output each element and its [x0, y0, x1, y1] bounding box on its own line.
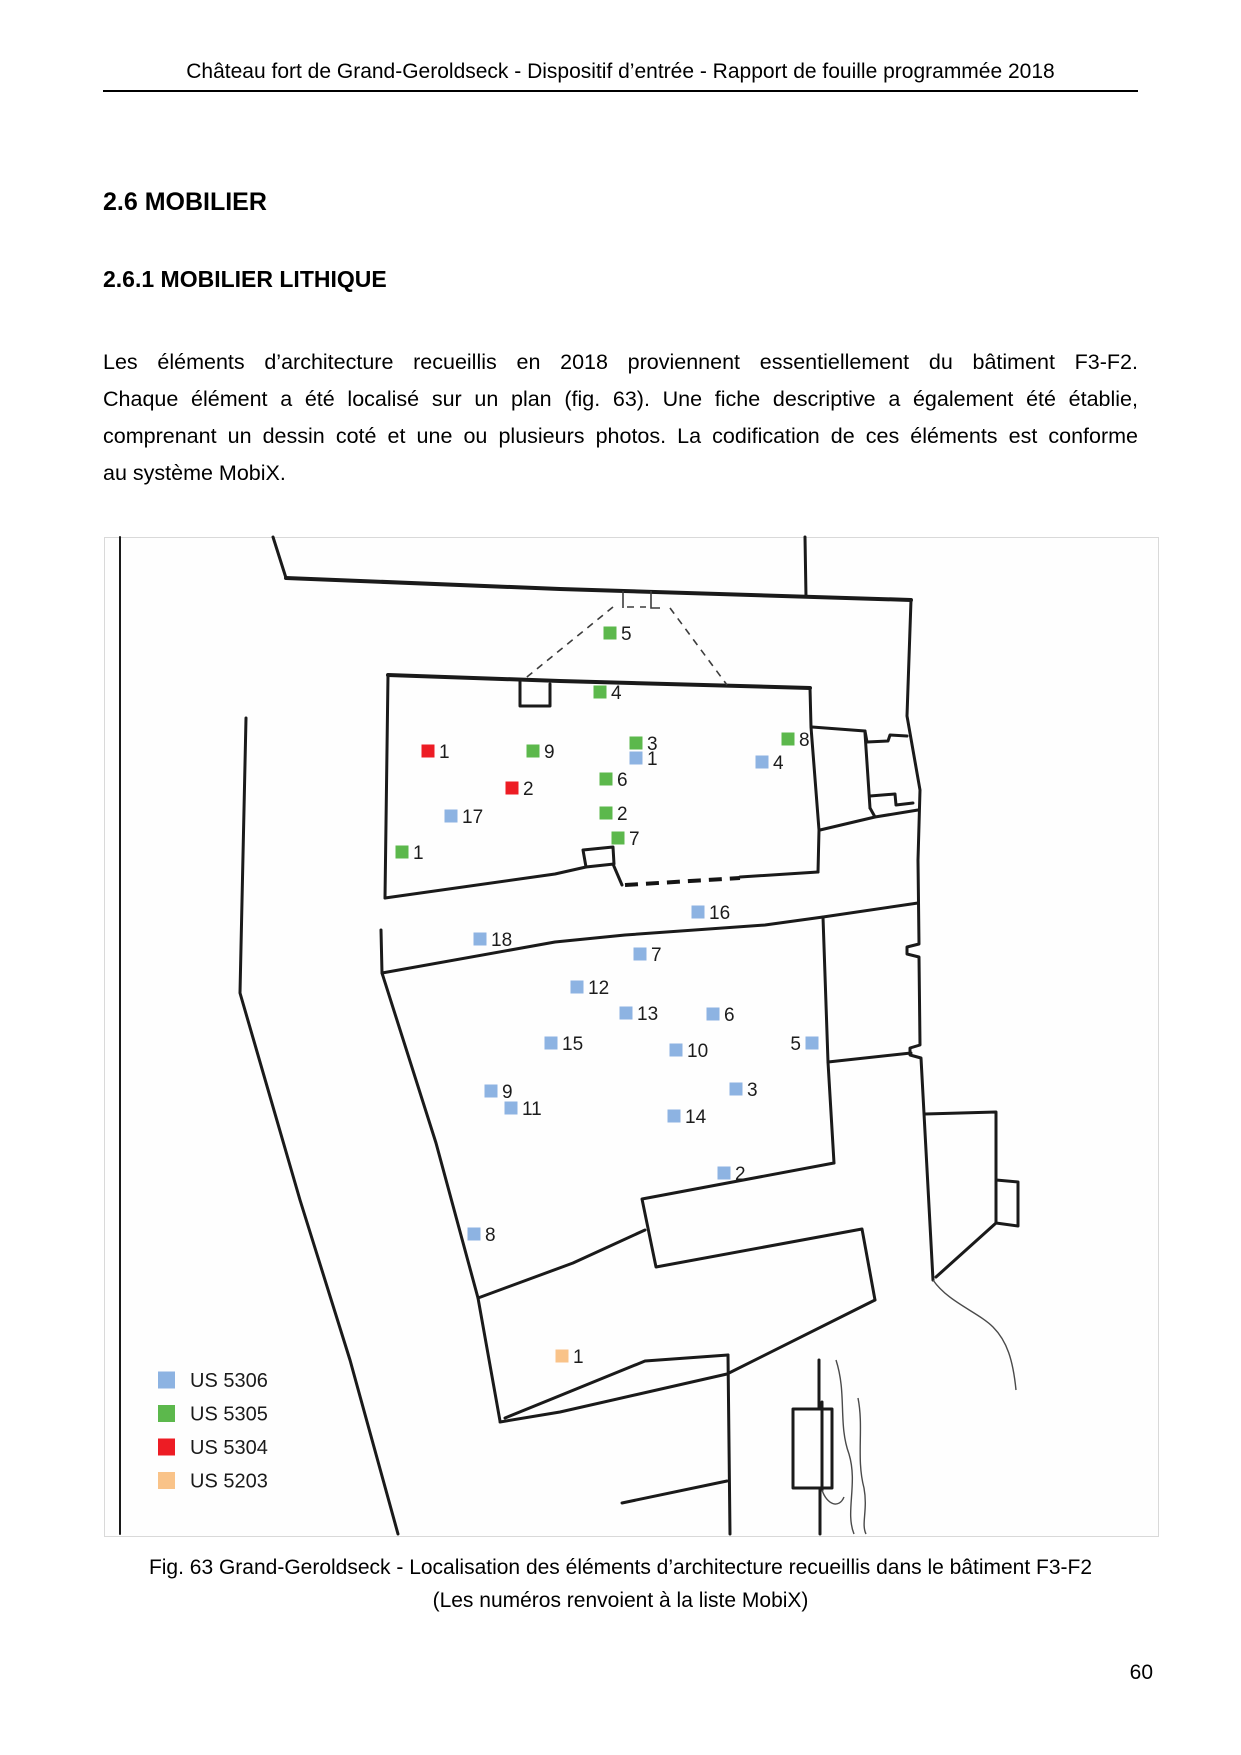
marker-square: [556, 1350, 569, 1363]
marker-number: 12: [588, 978, 609, 999]
plan-marker-us5304-2: 2: [506, 779, 534, 800]
marker-number: 8: [799, 730, 810, 751]
marker-square: [396, 846, 409, 859]
marker-number: 4: [611, 683, 622, 704]
marker-square: [782, 733, 795, 746]
legend-label: US 5304: [190, 1437, 268, 1459]
plan-marker-us5306-3: 3: [730, 1080, 758, 1101]
marker-number: 17: [462, 807, 483, 828]
plan-marker-us5306-1: 1: [630, 749, 658, 770]
figure-caption-line-1: Fig. 63 Grand-Geroldseck - Localisation …: [103, 1556, 1138, 1580]
marker-square: [692, 906, 705, 919]
marker-square: [670, 1044, 683, 1057]
plan-marker-us5306-5: 5: [790, 1034, 818, 1055]
plan-marker-us5305-2: 2: [600, 804, 628, 825]
marker-number: 6: [724, 1005, 735, 1026]
plan-legend: US 5306US 5305US 5304US 5203: [158, 1370, 268, 1493]
marker-square: [485, 1085, 498, 1098]
plan-marker-us5203-1: 1: [556, 1347, 584, 1368]
marker-square: [468, 1228, 481, 1241]
marker-square: [806, 1037, 819, 1050]
marker-square: [571, 981, 584, 994]
marker-square: [545, 1037, 558, 1050]
marker-number: 5: [790, 1034, 801, 1055]
marker-number: 16: [709, 903, 730, 924]
marker-square: [445, 810, 458, 823]
marker-square: [730, 1083, 743, 1096]
document-page: Château fort de Grand-Geroldseck - Dispo…: [0, 0, 1241, 1755]
plan-marker-us5305-1: 1: [396, 843, 424, 864]
figure-caption-line-2: (Les numéros renvoient à la liste MobiX): [103, 1589, 1138, 1613]
plan-marker-us5306-10: 10: [670, 1041, 709, 1062]
marker-square: [718, 1167, 731, 1180]
marker-number: 9: [502, 1082, 513, 1103]
plan-marker-us5305-6: 6: [600, 770, 628, 791]
marker-number: 1: [439, 742, 450, 763]
marker-square: [668, 1110, 681, 1123]
marker-number: 8: [485, 1225, 496, 1246]
plan-marker-us5305-9: 9: [527, 742, 555, 763]
marker-square: [506, 782, 519, 795]
marker-number: 13: [637, 1004, 658, 1025]
plan-marker-us5306-6: 6: [707, 1005, 735, 1026]
legend-swatch: [158, 1439, 175, 1456]
legend-item-us5306: US 5306: [158, 1370, 268, 1392]
legend-label: US 5203: [190, 1471, 268, 1493]
legend-swatch: [158, 1372, 175, 1389]
marker-number: 4: [773, 753, 784, 774]
site-plan: 543986271121417161871213615105931114281 …: [0, 0, 1241, 1755]
marker-number: 7: [651, 945, 662, 966]
marker-square: [612, 832, 625, 845]
plan-marker-us5306-13: 13: [620, 1004, 659, 1025]
legend-label: US 5306: [190, 1370, 268, 1392]
plan-marker-us5305-7: 7: [612, 829, 640, 850]
plan-marker-us5306-16: 16: [692, 903, 731, 924]
page-number: 60: [1130, 1661, 1153, 1685]
plan-marker-us5305-4: 4: [594, 683, 623, 704]
marker-square: [474, 933, 487, 946]
marker-number: 1: [647, 749, 658, 770]
marker-square: [600, 773, 613, 786]
marker-number: 7: [629, 829, 640, 850]
marker-number: 2: [617, 804, 628, 825]
marker-square: [604, 627, 617, 640]
marker-square: [527, 745, 540, 758]
marker-square: [600, 807, 613, 820]
plan-markers: 543986271121417161871213615105931114281: [396, 624, 819, 1368]
marker-number: 2: [523, 779, 534, 800]
marker-square: [756, 756, 769, 769]
plan-marker-us5306-12: 12: [571, 978, 610, 999]
marker-number: 10: [687, 1041, 708, 1062]
marker-square: [707, 1008, 720, 1021]
plan-marker-us5306-14: 14: [668, 1107, 707, 1128]
legend-swatch: [158, 1472, 175, 1489]
plan-marker-us5305-5: 5: [604, 624, 632, 645]
marker-square: [505, 1102, 518, 1115]
legend-item-us5304: US 5304: [158, 1437, 268, 1459]
marker-square: [422, 745, 435, 758]
marker-square: [594, 686, 607, 699]
plan-marker-us5306-18: 18: [474, 930, 513, 951]
plan-marker-us5306-7: 7: [634, 945, 662, 966]
marker-number: 3: [747, 1080, 758, 1101]
plan-marker-us5306-15: 15: [545, 1034, 584, 1055]
marker-number: 1: [573, 1347, 584, 1368]
marker-number: 1: [413, 843, 424, 864]
marker-number: 5: [621, 624, 632, 645]
marker-number: 9: [544, 742, 555, 763]
plan-marker-us5306-17: 17: [445, 807, 484, 828]
plan-marker-us5306-8: 8: [468, 1225, 496, 1246]
marker-number: 6: [617, 770, 628, 791]
marker-square: [620, 1007, 633, 1020]
legend-swatch: [158, 1405, 175, 1422]
marker-number: 14: [685, 1107, 707, 1128]
marker-square: [634, 948, 647, 961]
plan-marker-us5304-1: 1: [422, 742, 450, 763]
legend-item-us5203: US 5203: [158, 1471, 268, 1493]
marker-number: 2: [735, 1164, 746, 1185]
legend-label: US 5305: [190, 1404, 268, 1426]
marker-number: 18: [491, 930, 512, 951]
legend-item-us5305: US 5305: [158, 1404, 268, 1426]
plan-marker-us5306-11: 11: [505, 1099, 542, 1120]
plan-marker-us5306-4: 4: [756, 753, 785, 774]
marker-number: 15: [562, 1034, 583, 1055]
marker-square: [630, 737, 643, 750]
plan-marker-us5306-9: 9: [485, 1082, 513, 1103]
plan-marker-us5305-8: 8: [782, 730, 810, 751]
marker-square: [630, 752, 643, 765]
marker-number: 11: [522, 1099, 542, 1120]
